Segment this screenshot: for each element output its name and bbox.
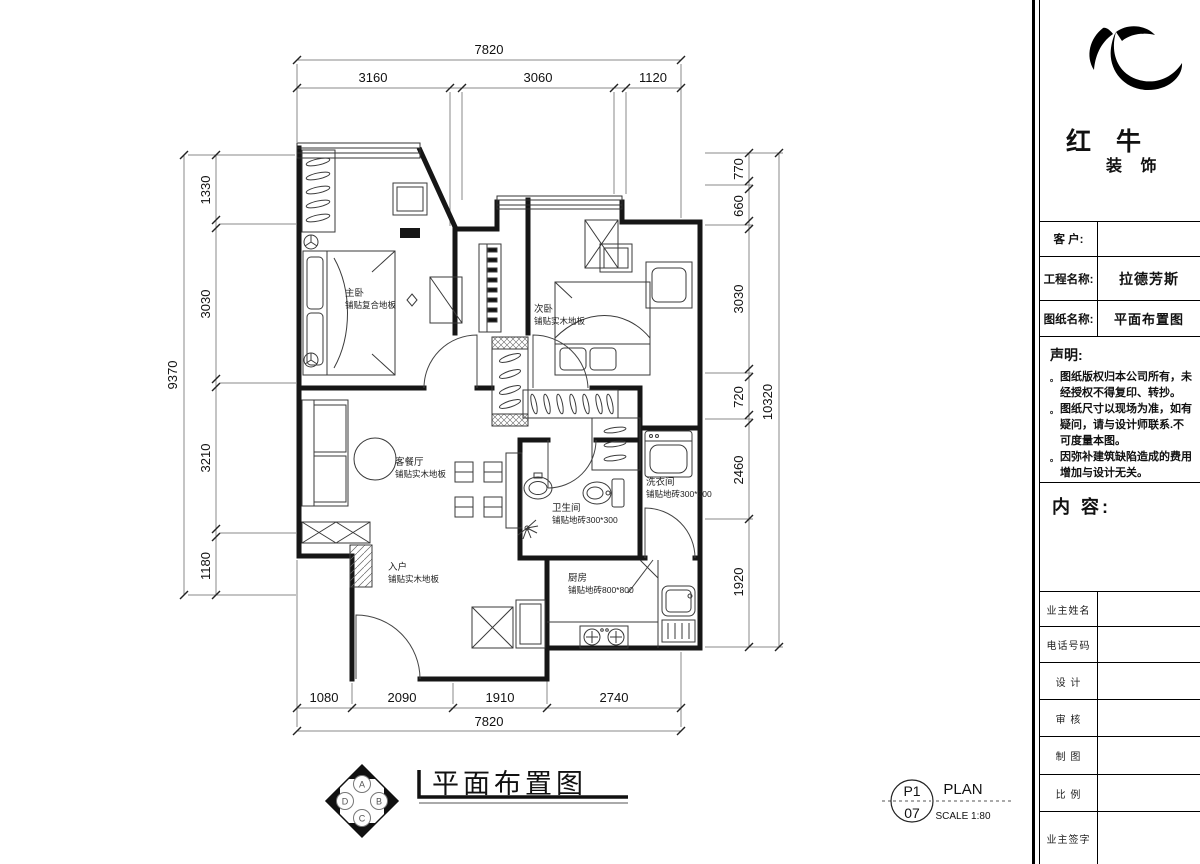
row-owner-name: 业主姓名 (1040, 592, 1200, 627)
row-designer: 设 计 (1040, 663, 1200, 700)
dining-set (455, 453, 522, 528)
compass-a: A (359, 780, 365, 790)
dim-bottom-seg-4: 2740 (600, 690, 629, 705)
bullet-icon: 。 (1050, 450, 1060, 482)
content-label: 内 容: (1052, 497, 1111, 517)
entry-door (356, 615, 420, 679)
master-door (424, 335, 477, 388)
dim-left-total: 9370 (165, 361, 180, 390)
washing-machine (645, 431, 692, 477)
dim-bottom-seg-2: 2090 (388, 690, 417, 705)
row-scale-value (1098, 775, 1200, 811)
row-reviewer-label: 审 核 (1040, 700, 1098, 736)
dim-right-seg-5: 2460 (731, 456, 746, 485)
dim-right-total: 10320 (760, 384, 775, 420)
field-project-value: 拉德芳斯 (1098, 257, 1200, 300)
dim-left-seg-3: 3210 (198, 444, 213, 473)
dim-right-seg-6: 1920 (731, 568, 746, 597)
room-kitchen-name: 厨房 (568, 572, 587, 584)
brand-subtitle: 装 饰 (1106, 152, 1163, 176)
dimension-ticks (180, 56, 783, 735)
field-sheet: 图纸名称: 平面布置图 (1040, 301, 1200, 337)
dim-left-seg-4: 1180 (198, 552, 213, 580)
row-reviewer-value (1098, 700, 1200, 736)
row-designer-value (1098, 663, 1200, 699)
kitchen-counter (547, 560, 658, 648)
row-drafter: 制 图 (1040, 737, 1200, 775)
stove (580, 626, 628, 648)
dim-right-seg-1: 770 (731, 158, 746, 180)
room-second-floor: 铺贴实木地板 (534, 316, 586, 326)
statement-list: 。图纸版权归本公司所有，未经授权不得复印、转抄。 。图纸尺寸以现场为准，如有疑问… (1050, 370, 1194, 482)
row-phone-value (1098, 627, 1200, 662)
dim-top-seg-1: 3160 (359, 70, 388, 85)
page-type: PLAN (943, 781, 982, 798)
row-owner-name-label: 业主姓名 (1040, 592, 1098, 626)
statement-title: 声明: (1050, 345, 1194, 365)
dim-top-seg-2: 3060 (524, 70, 553, 85)
room-kitchen-floor: 铺贴地砖800*800 (568, 585, 634, 595)
row-signature-label: 业主签字 (1040, 812, 1098, 864)
room-entry-floor: 铺贴实木地板 (388, 574, 440, 584)
field-customer-value (1098, 222, 1200, 256)
field-project-label: 工程名称: (1040, 257, 1098, 300)
field-customer-label: 客 户: (1040, 222, 1098, 256)
room-living-name: 客餐厅 (395, 456, 424, 468)
row-signature: 业主签字 (1040, 812, 1200, 864)
dim-top-total: 7820 (475, 42, 504, 57)
row-scale: 比 例 (1040, 775, 1200, 812)
dim-bottom-total: 7820 (475, 714, 504, 729)
room-laundry-name: 洗衣间 (646, 476, 675, 488)
kitchen-sink (662, 586, 695, 642)
statement-item: 。因弥补建筑缺陷造成的费用增加与设计无关。 (1050, 450, 1194, 482)
bullet-icon: 。 (1050, 370, 1060, 402)
second-bed (555, 282, 650, 375)
windows (297, 143, 622, 209)
row-drafter-value (1098, 737, 1200, 774)
room-master-name: 主卧 (345, 287, 365, 299)
room-laundry-floor: 铺贴地砖300*300 (646, 489, 712, 499)
room-entry-name: 入户 (388, 561, 407, 573)
dim-left-seg-2: 3030 (198, 290, 213, 319)
field-project: 工程名称: 拉德芳斯 (1040, 257, 1200, 301)
statement-item-text: 图纸尺寸以现场为准，如有疑问，请与设计师联系.不可度量本图。 (1060, 402, 1194, 450)
statement-item-text: 图纸版权归本公司所有，未经授权不得复印、转抄。 (1060, 370, 1194, 402)
rug (354, 438, 396, 480)
dimension-lines (184, 60, 783, 731)
dim-right-seg-3: 3030 (731, 285, 746, 314)
title-block: 红 牛 装 饰 客 户: 工程名称: 拉德芳斯 图纸名称: 平面布置图 声明: … (1032, 0, 1200, 864)
column (350, 545, 372, 587)
compass-b: B (376, 797, 382, 807)
room-second-name: 次卧 (534, 303, 554, 315)
page-badge: P1 07 PLAN SCALE 1:80 (882, 780, 1014, 822)
page-sheet: 07 (904, 805, 920, 821)
row-scale-label: 比 例 (1040, 775, 1098, 811)
row-phone: 电话号码 (1040, 627, 1200, 663)
master-wardrobe (302, 150, 335, 232)
compass-d: D (342, 797, 349, 807)
row-owner-name-value (1098, 592, 1200, 626)
toilet (583, 479, 624, 507)
field-sheet-label: 图纸名称: (1040, 301, 1098, 336)
content-cell: 内 容: (1040, 483, 1200, 592)
row-reviewer: 审 核 (1040, 700, 1200, 737)
dim-right-seg-2: 660 (731, 195, 746, 217)
laundry-door (645, 508, 695, 558)
compass-icon: A B C D (326, 765, 398, 837)
bath-door (548, 440, 596, 488)
room-master-floor: 铺贴复合地板 (345, 300, 397, 310)
field-customer: 客 户: (1040, 222, 1200, 257)
wall-stub (400, 228, 420, 238)
room-bath-floor: 铺贴地砖300*300 (552, 515, 618, 525)
fridge (516, 600, 545, 648)
dim-bottom-seg-1: 1080 (310, 690, 339, 705)
sheet-title: 平面布置图 (432, 769, 587, 799)
redbull-logo-icon (1070, 22, 1190, 114)
closet-horizontal (523, 390, 618, 418)
drawing-sheet: 7820 3160 3060 1120 1080 2090 1910 2740 … (0, 0, 1200, 864)
brand-cell: 红 牛 装 饰 (1040, 0, 1200, 222)
room-bath-name: 卫生间 (552, 502, 581, 514)
piano (479, 244, 501, 332)
statement-item-text: 因弥补建筑缺陷造成的费用增加与设计无关。 (1060, 450, 1194, 482)
entry-cabinet (472, 607, 513, 648)
dresser (393, 183, 427, 215)
floor-plan-drawing: 7820 3160 3060 1120 1080 2090 1910 2740 … (0, 0, 1032, 864)
dim-top-seg-3: 1120 (639, 70, 667, 85)
dim-bottom-seg-3: 1910 (486, 690, 515, 705)
statement-item: 。图纸尺寸以现场为准，如有疑问，请与设计师联系.不可度量本图。 (1050, 402, 1194, 450)
ceiling-fan-icon (304, 235, 318, 367)
tv-cabinet (302, 522, 370, 543)
dimension-text: 7820 3160 3060 1120 1080 2090 1910 2740 … (165, 42, 775, 729)
dim-right-seg-4: 720 (731, 386, 746, 408)
bullet-icon: 。 (1050, 402, 1060, 450)
row-phone-label: 电话号码 (1040, 627, 1098, 662)
page-code: P1 (903, 783, 920, 799)
closet-vertical (592, 418, 640, 470)
sheet-title-block: 平面布置图 (419, 769, 628, 803)
statement-item: 。图纸版权归本公司所有，未经授权不得复印、转抄。 (1050, 370, 1194, 402)
dim-left-seg-1: 1330 (198, 176, 213, 205)
statement-cell: 声明: 。图纸版权归本公司所有，未经授权不得复印、转抄。 。图纸尺寸以现场为准，… (1040, 337, 1200, 483)
field-sheet-value: 平面布置图 (1098, 301, 1200, 336)
compass-c: C (359, 814, 366, 824)
row-designer-label: 设 计 (1040, 663, 1098, 699)
desk (646, 262, 692, 308)
sofa (302, 400, 348, 506)
row-signature-value (1098, 812, 1200, 864)
room-living-floor: 铺贴实木地板 (395, 469, 447, 479)
page-scale: SCALE 1:80 (935, 811, 990, 822)
row-drafter-label: 制 图 (1040, 737, 1098, 774)
